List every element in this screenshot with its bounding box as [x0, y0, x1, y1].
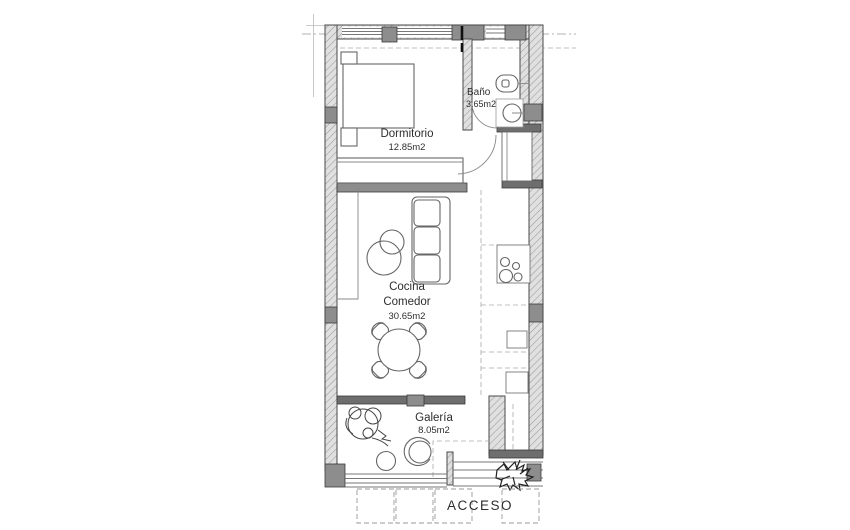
kitchen-counter	[481, 190, 530, 396]
dormitorio-area: 12.85m2	[389, 142, 426, 153]
cocina-name-line2: Comedor	[383, 296, 430, 308]
plant-icon	[346, 407, 391, 446]
stove-icon	[497, 245, 530, 283]
room-cocina-comedor: Cocina Comedor 30.65m2	[338, 188, 530, 396]
step-outline	[433, 441, 489, 477]
wardrobe-icon	[337, 158, 463, 183]
galeria-area: 8.05m2	[418, 425, 450, 436]
kitchen-sink-icon	[507, 331, 527, 348]
floor-plan: Dormitorio 12.85m2 Baño 3.65m2	[0, 0, 850, 530]
dining-set-icon	[369, 320, 429, 381]
acceso-label: ACCESO	[447, 498, 513, 513]
galeria-name: Galería	[415, 412, 453, 424]
appliance-icon	[506, 372, 528, 393]
chair-icon	[404, 438, 431, 466]
dormitorio-name: Dormitorio	[380, 128, 433, 140]
round-table-icon	[377, 452, 396, 471]
bano-area: 3.65m2	[466, 99, 496, 109]
dining-table-icon	[378, 329, 420, 371]
built-in-line	[338, 188, 358, 299]
cocina-name-line1: Cocina	[389, 281, 425, 293]
sofa-icon	[412, 197, 450, 284]
cocina-area: 30.65m2	[389, 311, 426, 322]
armchair-icon	[367, 230, 404, 275]
door-arc	[458, 135, 496, 174]
duct-shaft	[502, 132, 532, 181]
window	[345, 474, 447, 487]
room-galeria: Galería 8.05m2	[345, 407, 489, 487]
floorplan-canvas: Dormitorio 12.85m2 Baño 3.65m2	[0, 0, 850, 530]
bano-name: Baño	[467, 87, 491, 98]
